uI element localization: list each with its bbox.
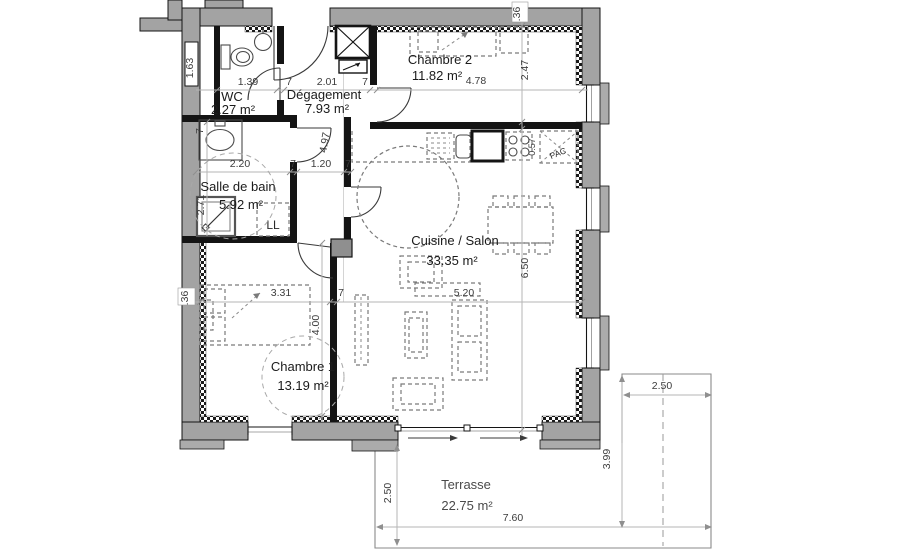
floor-plan-page: LL PAC bbox=[0, 0, 898, 556]
dim-wc-width: 1.39 bbox=[238, 76, 259, 88]
dim-wc-height: 1.63 bbox=[184, 58, 196, 79]
dim-terrace-right-width: 2.50 bbox=[652, 380, 673, 392]
room-area-terrasse: 22.75 m² bbox=[441, 498, 493, 513]
dim-bath-wall: 7 bbox=[194, 128, 206, 134]
wall-right-3 bbox=[582, 230, 600, 318]
slab-bottom-1 bbox=[180, 440, 224, 449]
entry-closet bbox=[336, 26, 370, 58]
slab-bottom-2 bbox=[352, 440, 398, 451]
slab-bottom-3 bbox=[540, 440, 600, 449]
wall-right-2 bbox=[582, 122, 600, 188]
tall-unit-fridge bbox=[472, 131, 503, 161]
party-wall-stub bbox=[168, 0, 182, 20]
sill-right-2 bbox=[600, 186, 609, 232]
dim-salon-width: 5.20 bbox=[454, 287, 475, 299]
room-name-bath: Salle de bain bbox=[200, 179, 275, 194]
dim-terrace-right-height: 3.99 bbox=[601, 449, 613, 470]
dim-left-wall: .36 bbox=[179, 291, 191, 306]
room-name-chambre2: Chambre 2 bbox=[408, 52, 472, 67]
room-area-cuisine-salon: 33.35 m² bbox=[426, 253, 478, 268]
room-area-wc: 2.27 m² bbox=[211, 102, 256, 117]
wall-bottom-3 bbox=[542, 422, 600, 440]
sill-right-1 bbox=[600, 83, 609, 124]
dim-wall-c: 7 bbox=[290, 158, 296, 170]
dim-top-wall: .36 bbox=[511, 7, 523, 22]
technical-shaft bbox=[331, 239, 352, 257]
dim-ch2-width: 4.78 bbox=[466, 75, 487, 87]
background bbox=[0, 0, 898, 556]
room-area-chambre2: 11.82 m² bbox=[412, 68, 463, 83]
dim-wall-e: 7 bbox=[338, 287, 344, 299]
wall-right-1 bbox=[582, 8, 600, 85]
room-name-degagement: Dégagement bbox=[287, 87, 362, 102]
room-name-chambre1: Chambre 1 bbox=[271, 359, 335, 374]
washing-machine-label: LL bbox=[266, 218, 280, 232]
dim-bath-width: 2.20 bbox=[230, 158, 251, 170]
dim-wall-a: 7 bbox=[286, 76, 292, 88]
room-area-bath: 5.92 m² bbox=[219, 197, 264, 212]
wall-bottom-1 bbox=[182, 422, 248, 440]
room-name-terrasse: Terrasse bbox=[441, 477, 491, 492]
dim-hall-width: 2.01 bbox=[317, 76, 338, 88]
wall-bottom-2 bbox=[292, 422, 398, 440]
sill-right-3 bbox=[600, 316, 609, 370]
dim-corridor-width: 1.20 bbox=[311, 158, 332, 170]
electrical-panel bbox=[339, 60, 367, 73]
wall-top-right bbox=[330, 8, 600, 26]
dim-wall-b: 7 bbox=[362, 76, 368, 88]
room-name-cuisine-salon: Cuisine / Salon bbox=[411, 233, 498, 248]
dim-terrace-left-height: 2.50 bbox=[382, 483, 394, 504]
dim-bath-height: 2.71 bbox=[195, 195, 207, 216]
room-area-chambre1: 13.19 m² bbox=[277, 378, 329, 393]
dim-salon-height: 6.50 bbox=[519, 258, 531, 279]
dim-wall-d: 7 bbox=[345, 158, 351, 170]
dim-ch2-depth: 2.47 bbox=[519, 60, 531, 81]
room-area-degagement: 7.93 m² bbox=[305, 101, 350, 116]
floor-plan-canvas: LL PAC bbox=[0, 0, 898, 556]
dim-ch1-height: 4.00 bbox=[310, 315, 322, 336]
dim-ch1-width: 3.31 bbox=[271, 287, 292, 299]
dim-counter-depth: 0.57 bbox=[527, 138, 537, 156]
dim-terrace-width: 7.60 bbox=[503, 512, 524, 524]
